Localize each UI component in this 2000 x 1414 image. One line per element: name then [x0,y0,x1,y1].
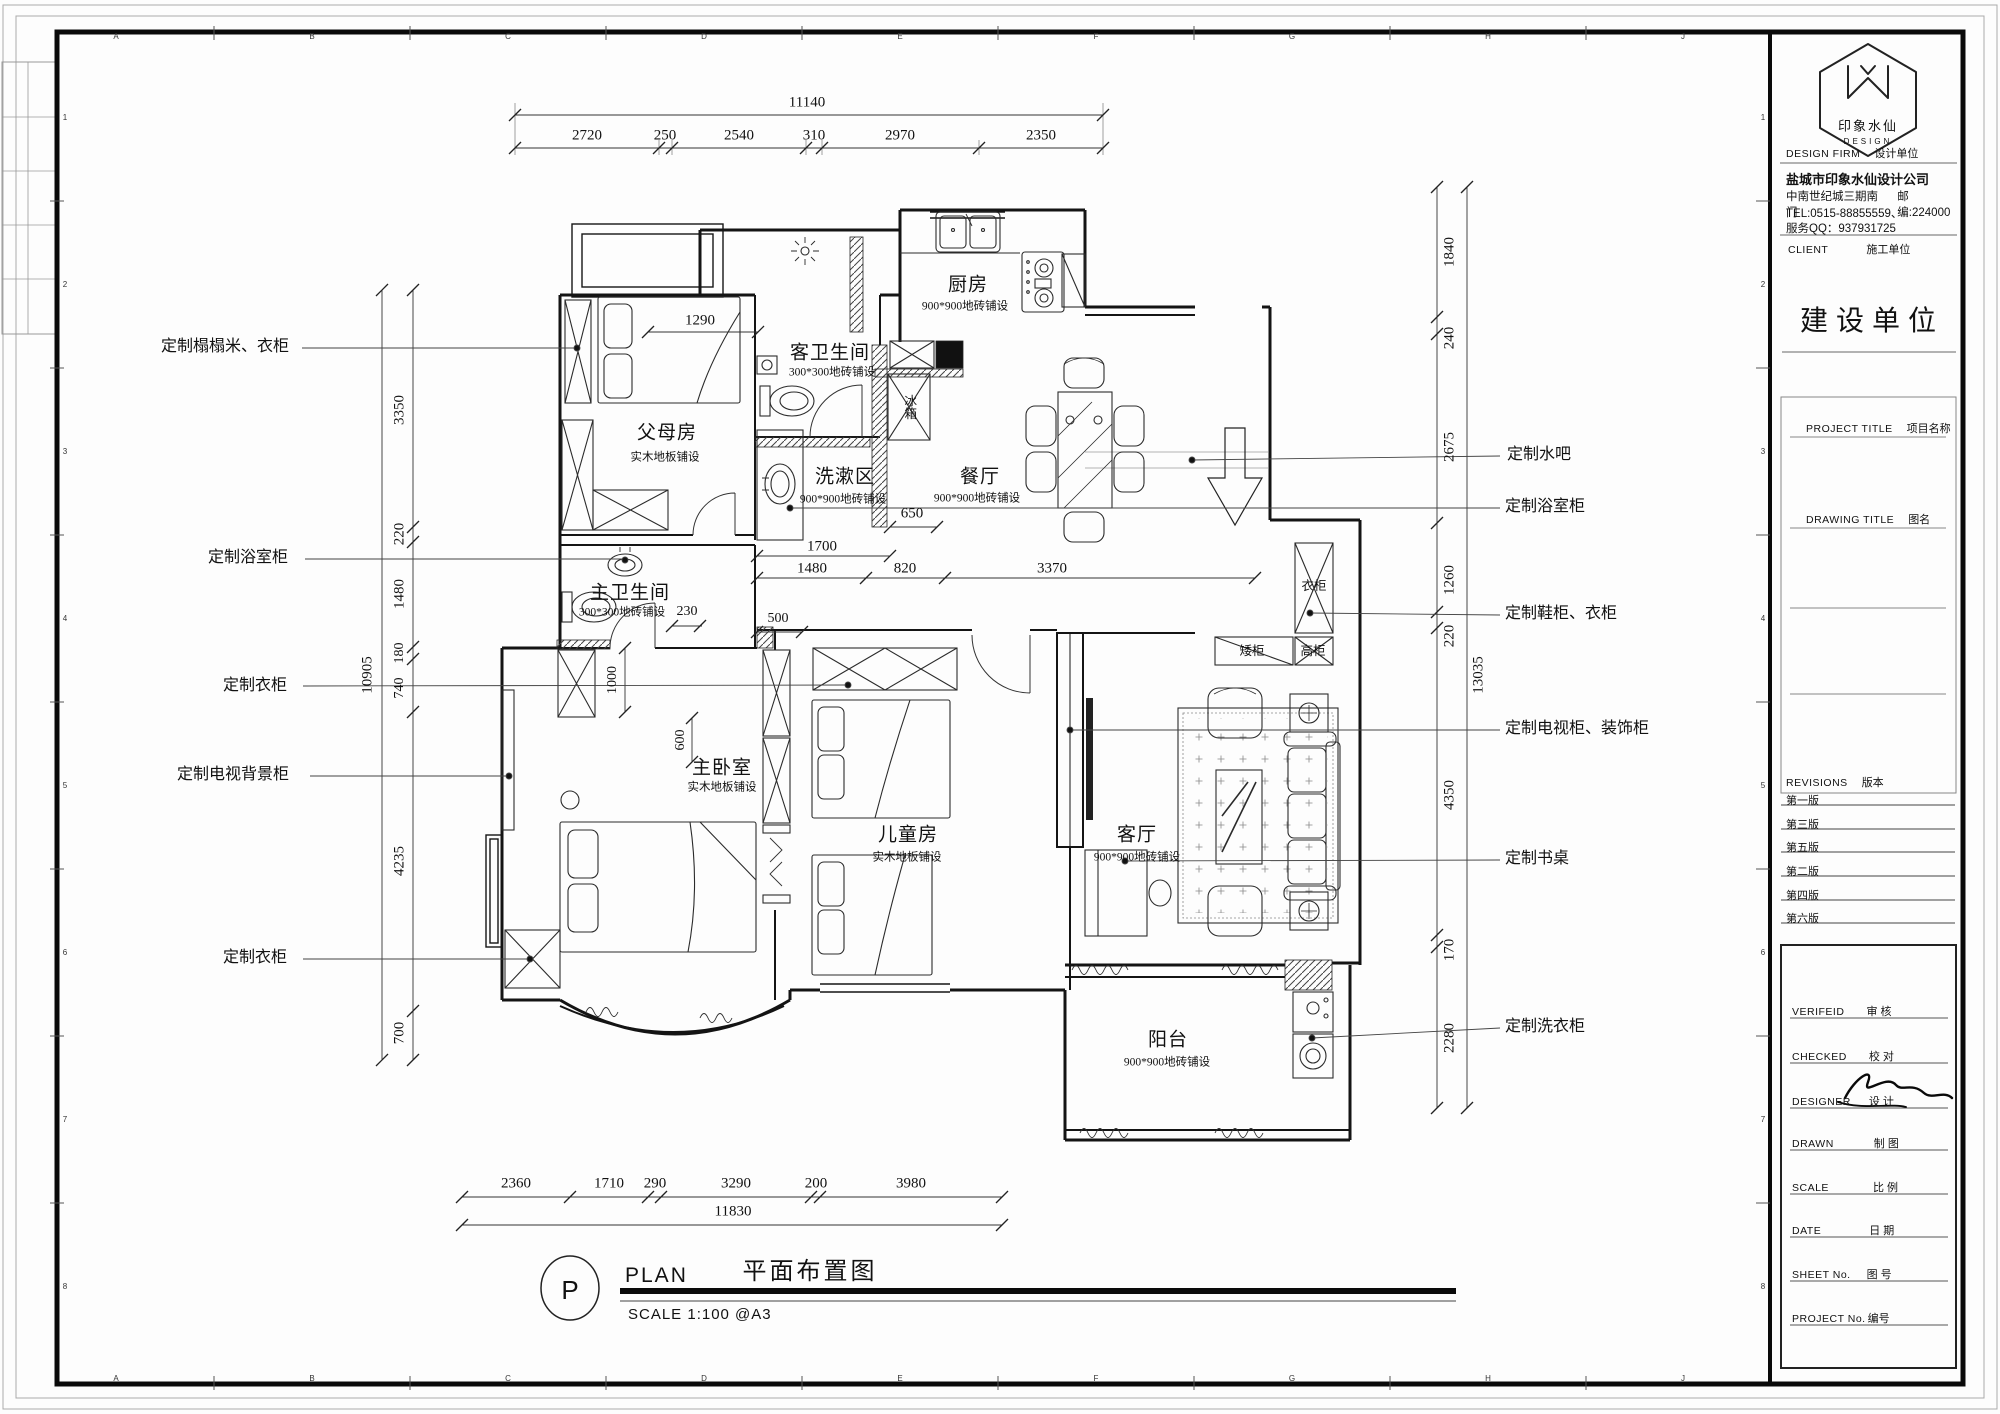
plan-bubble: P [561,1277,578,1303]
dim-bottom-segment: 3290 [721,1177,751,1192]
dim-bottom-segment: 1710 [594,1177,624,1192]
dim-left-segment: 4235 [393,846,408,876]
dim-top-segment: 2970 [885,129,915,144]
room-label-master-bedroom: 主卧室 [692,759,752,778]
dim-right-segment: 170 [1443,939,1458,962]
floor-plan-canvas [0,0,2000,1414]
drawing-sheet: A B C D E F G H J A B C D E F G H J 1 2 … [0,0,2000,1414]
project-title-label-cn: 项目名称 [1907,420,1951,436]
dim-interior: 650 [901,507,924,522]
grid-number-right: 1 [1761,114,1765,122]
dim-interior: 600 [674,730,688,751]
dim-right-segment: 1260 [1443,565,1458,595]
dim-bottom-segment: 200 [805,1177,828,1192]
dim-interior: 1700 [807,540,837,555]
furniture-living-room [1085,688,1340,936]
sheet-no-label-en: SHEET No. [1792,1269,1851,1281]
callout-desk: 定制书桌 [1505,851,1569,867]
grid-number-right: 6 [1761,949,1765,957]
grid-number-left: 8 [63,1283,67,1291]
checked-label-en: CHECKED [1792,1051,1847,1063]
room-label-balcony: 阳台 [1148,1031,1188,1050]
grid-letter-top: G [1289,33,1295,41]
grid-letter-bottom: C [505,1375,511,1383]
grid-number-right: 8 [1761,1283,1765,1291]
grid-number-left: 1 [63,114,67,122]
drawing-title-label-en: DRAWING TITLE [1806,514,1894,526]
room-label-guest-bath: 客卫生间 [790,344,870,363]
grid-letter-bottom: D [701,1375,707,1383]
dim-left-segment: 1480 [393,579,408,609]
revision-item: 第二版 [1786,863,1819,879]
grid-letter-bottom: G [1289,1375,1295,1383]
dim-bottom-segment: 290 [644,1177,667,1192]
grid-number-right: 3 [1761,448,1765,456]
grid-letter-top: B [309,33,314,41]
checked-label-cn: 校 对 [1869,1048,1894,1064]
revisions-row: REVISIONS 版本 [1786,774,1884,790]
dim-right-segment: 2675 [1443,432,1458,462]
fixture-label-tall-cabinet: 高柜 [1300,645,1325,658]
verified-label-en: VERIFEID [1792,1006,1844,1018]
revision-item: 第六版 [1786,910,1819,926]
grid-number-left: 3 [63,448,67,456]
revision-item: 第五版 [1786,839,1819,855]
designer-row: DESIGNER 设 计 [1792,1093,1894,1109]
drawing-title-row: DRAWING TITLE 图名 [1806,511,1930,527]
dim-right-segment: 2280 [1443,1023,1458,1053]
date-row: DATE 日 期 [1792,1222,1894,1238]
project-no-label-en: PROJECT No. [1792,1313,1866,1325]
callout-wardrobe-left-1: 定制衣柜 [223,678,287,694]
grid-letter-top: F [1094,33,1099,41]
room-floor-master-bedroom: 实木地板铺设 [688,782,757,794]
project-no-row: PROJECT No. 编号 [1792,1310,1890,1326]
dim-top-segment: 2720 [572,129,602,144]
dim-left-segment: 700 [393,1022,408,1045]
room-floor-kitchen: 900*900地砖铺设 [922,301,1008,313]
drawing-title-label-cn: 图名 [1908,511,1930,527]
grid-letter-top: E [897,33,902,41]
room-label-wash-area: 洗漱区 [815,468,875,487]
design-firm-label-cn: 设计单位 [1874,145,1918,161]
grid-letter-top: H [1485,33,1491,41]
furniture-guest-bath [757,237,819,416]
project-title-label-en: PROJECT TITLE [1806,423,1893,435]
grid-letter-top: C [505,33,511,41]
designer-label-cn: 设 计 [1869,1093,1894,1109]
dim-interior: 3370 [1037,562,1067,577]
dim-left-segment: 180 [393,643,407,664]
callout-laundry-cabinet: 定制洗衣柜 [1505,1019,1585,1035]
dim-right-segment: 240 [1443,327,1458,350]
date-label-en: DATE [1792,1225,1821,1237]
dim-left-segment: 3350 [393,395,408,425]
revision-item: 第三版 [1786,816,1819,832]
callout-tv-cabinet: 定制电视柜、装饰柜 [1505,721,1649,737]
sheet-no-label-cn: 图 号 [1867,1266,1892,1282]
revisions-label-en: REVISIONS [1786,777,1848,789]
drawn-row: DRAWN 制 图 [1792,1135,1899,1151]
room-label-kitchen: 厨房 [948,276,988,295]
dim-left-overall: 10905 [361,656,376,694]
project-no-label-cn: 编号 [1868,1310,1890,1326]
grid-number-right: 5 [1761,782,1765,790]
date-label-cn: 日 期 [1869,1222,1894,1238]
grid-letter-bottom: A [113,1375,118,1383]
drawn-label-cn: 制 图 [1874,1135,1899,1151]
callout-wardrobe-left-2: 定制衣柜 [223,950,287,966]
dim-interior: 1480 [797,562,827,577]
service-qq: 服务QQ：937931725 [1786,220,1896,236]
revision-item: 第四版 [1786,887,1819,903]
dim-bottom-segment: 2360 [501,1177,531,1192]
scale-row: SCALE 比 例 [1792,1179,1898,1195]
owner-title: 建设单位 [1800,308,1944,336]
room-floor-wash-area: 900*900地砖铺设 [800,494,886,506]
dim-interior: 820 [894,562,917,577]
dim-left-segment: 740 [393,678,407,699]
room-floor-children: 实木地板铺设 [873,852,942,864]
callout-water-bar: 定制水吧 [1507,447,1571,463]
room-label-dining: 餐厅 [960,468,1000,487]
grid-letter-top: D [701,33,707,41]
scale-label-en: SCALE [1792,1182,1829,1194]
grid-letter-bottom: J [1681,1375,1685,1383]
plan-label: PLAN [625,1264,688,1288]
grid-letter-bottom: B [309,1375,314,1383]
furniture-kitchen [888,212,1085,440]
dim-top-segment: 250 [654,129,677,144]
client-label-cn: 施工单位 [1866,241,1910,257]
sheet-no-row: SHEET No. 图 号 [1792,1266,1892,1282]
grid-number-left: 7 [63,1116,67,1124]
plan-title-cn: 平面布置图 [743,1260,878,1284]
entry-arrow [1208,428,1262,525]
design-firm-label-en: DESIGN FIRM [1786,148,1860,160]
callout-tatami-wardrobe: 定制榻榻米、衣柜 [161,339,289,355]
room-floor-parents: 实木地板铺设 [631,452,700,464]
grid-number-left: 2 [63,281,67,289]
verified-row: VERIFEID 审 核 [1792,1003,1892,1019]
client-row: CLIENT 施工单位 [1788,241,1910,257]
dim-top-segment: 2350 [1026,129,1056,144]
grid-letter-top: J [1681,33,1685,41]
room-label-master-bath: 主卫生间 [590,584,670,603]
grid-letter-top: A [113,33,118,41]
verified-label-cn: 审 核 [1866,1003,1891,1019]
dim-top-segment: 310 [803,129,826,144]
room-floor-guest-bath: 300*300地砖铺设 [789,367,875,379]
dim-interior: 1290 [685,314,715,329]
client-label-en: CLIENT [1788,244,1828,256]
drawn-label-en: DRAWN [1792,1138,1834,1150]
dim-right-segment: 1840 [1443,237,1458,267]
room-floor-dining: 900*900地砖铺设 [934,493,1020,505]
furniture-master-bedroom [502,650,756,988]
leader-lines [302,345,1500,1041]
grid-number-right: 2 [1761,281,1765,289]
fixture-label-low-cabinet: 矮柜 [1239,645,1264,658]
dim-right-segment: 220 [1443,625,1458,648]
dim-right-overall: 13035 [1472,656,1487,694]
grid-number-right: 7 [1761,1116,1765,1124]
dim-bottom-segment: 3980 [896,1177,926,1192]
furniture-divider-wardrobe [763,650,790,903]
grid-number-left: 6 [63,949,67,957]
revision-item: 第一版 [1786,792,1819,808]
dim-interior: 1000 [606,666,620,694]
dim-top-segment: 2540 [724,129,754,144]
grid-letter-bottom: F [1094,1375,1099,1383]
scale-label-cn: 比 例 [1873,1179,1898,1195]
room-floor-living: 900*900地砖铺设 [1094,852,1180,864]
room-floor-balcony: 900*900地砖铺设 [1124,1057,1210,1069]
furniture-children-room [812,648,957,975]
design-firm-row: DESIGN FIRM 设计单位 [1786,145,1918,161]
room-label-parents: 父母房 [637,424,697,443]
postcode: 邮编:224000 [1897,188,1958,220]
project-title-row: PROJECT TITLE 项目名称 [1806,420,1951,436]
dim-right-segment: 4350 [1443,780,1458,810]
dim-interior: 500 [768,612,789,626]
logo-name: 印象水仙 [1838,120,1898,133]
room-label-children: 儿童房 [878,826,938,845]
dim-top-overall: 11140 [789,96,825,111]
dim-bottom-overall: 11830 [715,1205,752,1220]
grid-letter-bottom: E [897,1375,902,1383]
dim-left-segment: 220 [393,523,408,546]
dim-interior: 230 [677,605,698,619]
callout-bath-cabinet-right: 定制浴室柜 [1505,499,1585,515]
revisions-label-cn: 版本 [1862,774,1884,790]
room-label-living: 客厅 [1117,826,1157,845]
checked-row: CHECKED 校 对 [1792,1048,1894,1064]
designer-label-en: DESIGNER [1792,1096,1851,1108]
design-firm-name: 盐城市印象水仙设计公司 [1786,169,1929,188]
telephone: TEL:0515-88855559、 [1786,205,1902,221]
grid-letter-bottom: H [1485,1375,1491,1383]
room-floor-master-bath: 300*300地砖铺设 [579,607,665,619]
fixture-label-fridge: 冰箱 [903,395,916,420]
callout-bath-cabinet-left: 定制浴室柜 [208,550,288,566]
grid-number-left: 5 [63,782,67,790]
callout-shoe-wardrobe: 定制鞋柜、衣柜 [1505,606,1617,622]
grid-number-right: 4 [1761,615,1765,623]
fixture-label-wardrobe: 衣柜 [1301,580,1326,593]
plan-scale: SCALE 1:100 @A3 [628,1306,772,1323]
furniture-dining [1026,358,1144,542]
grid-number-left: 4 [63,615,67,623]
callout-tv-backdrop: 定制电视背景柜 [177,767,289,783]
